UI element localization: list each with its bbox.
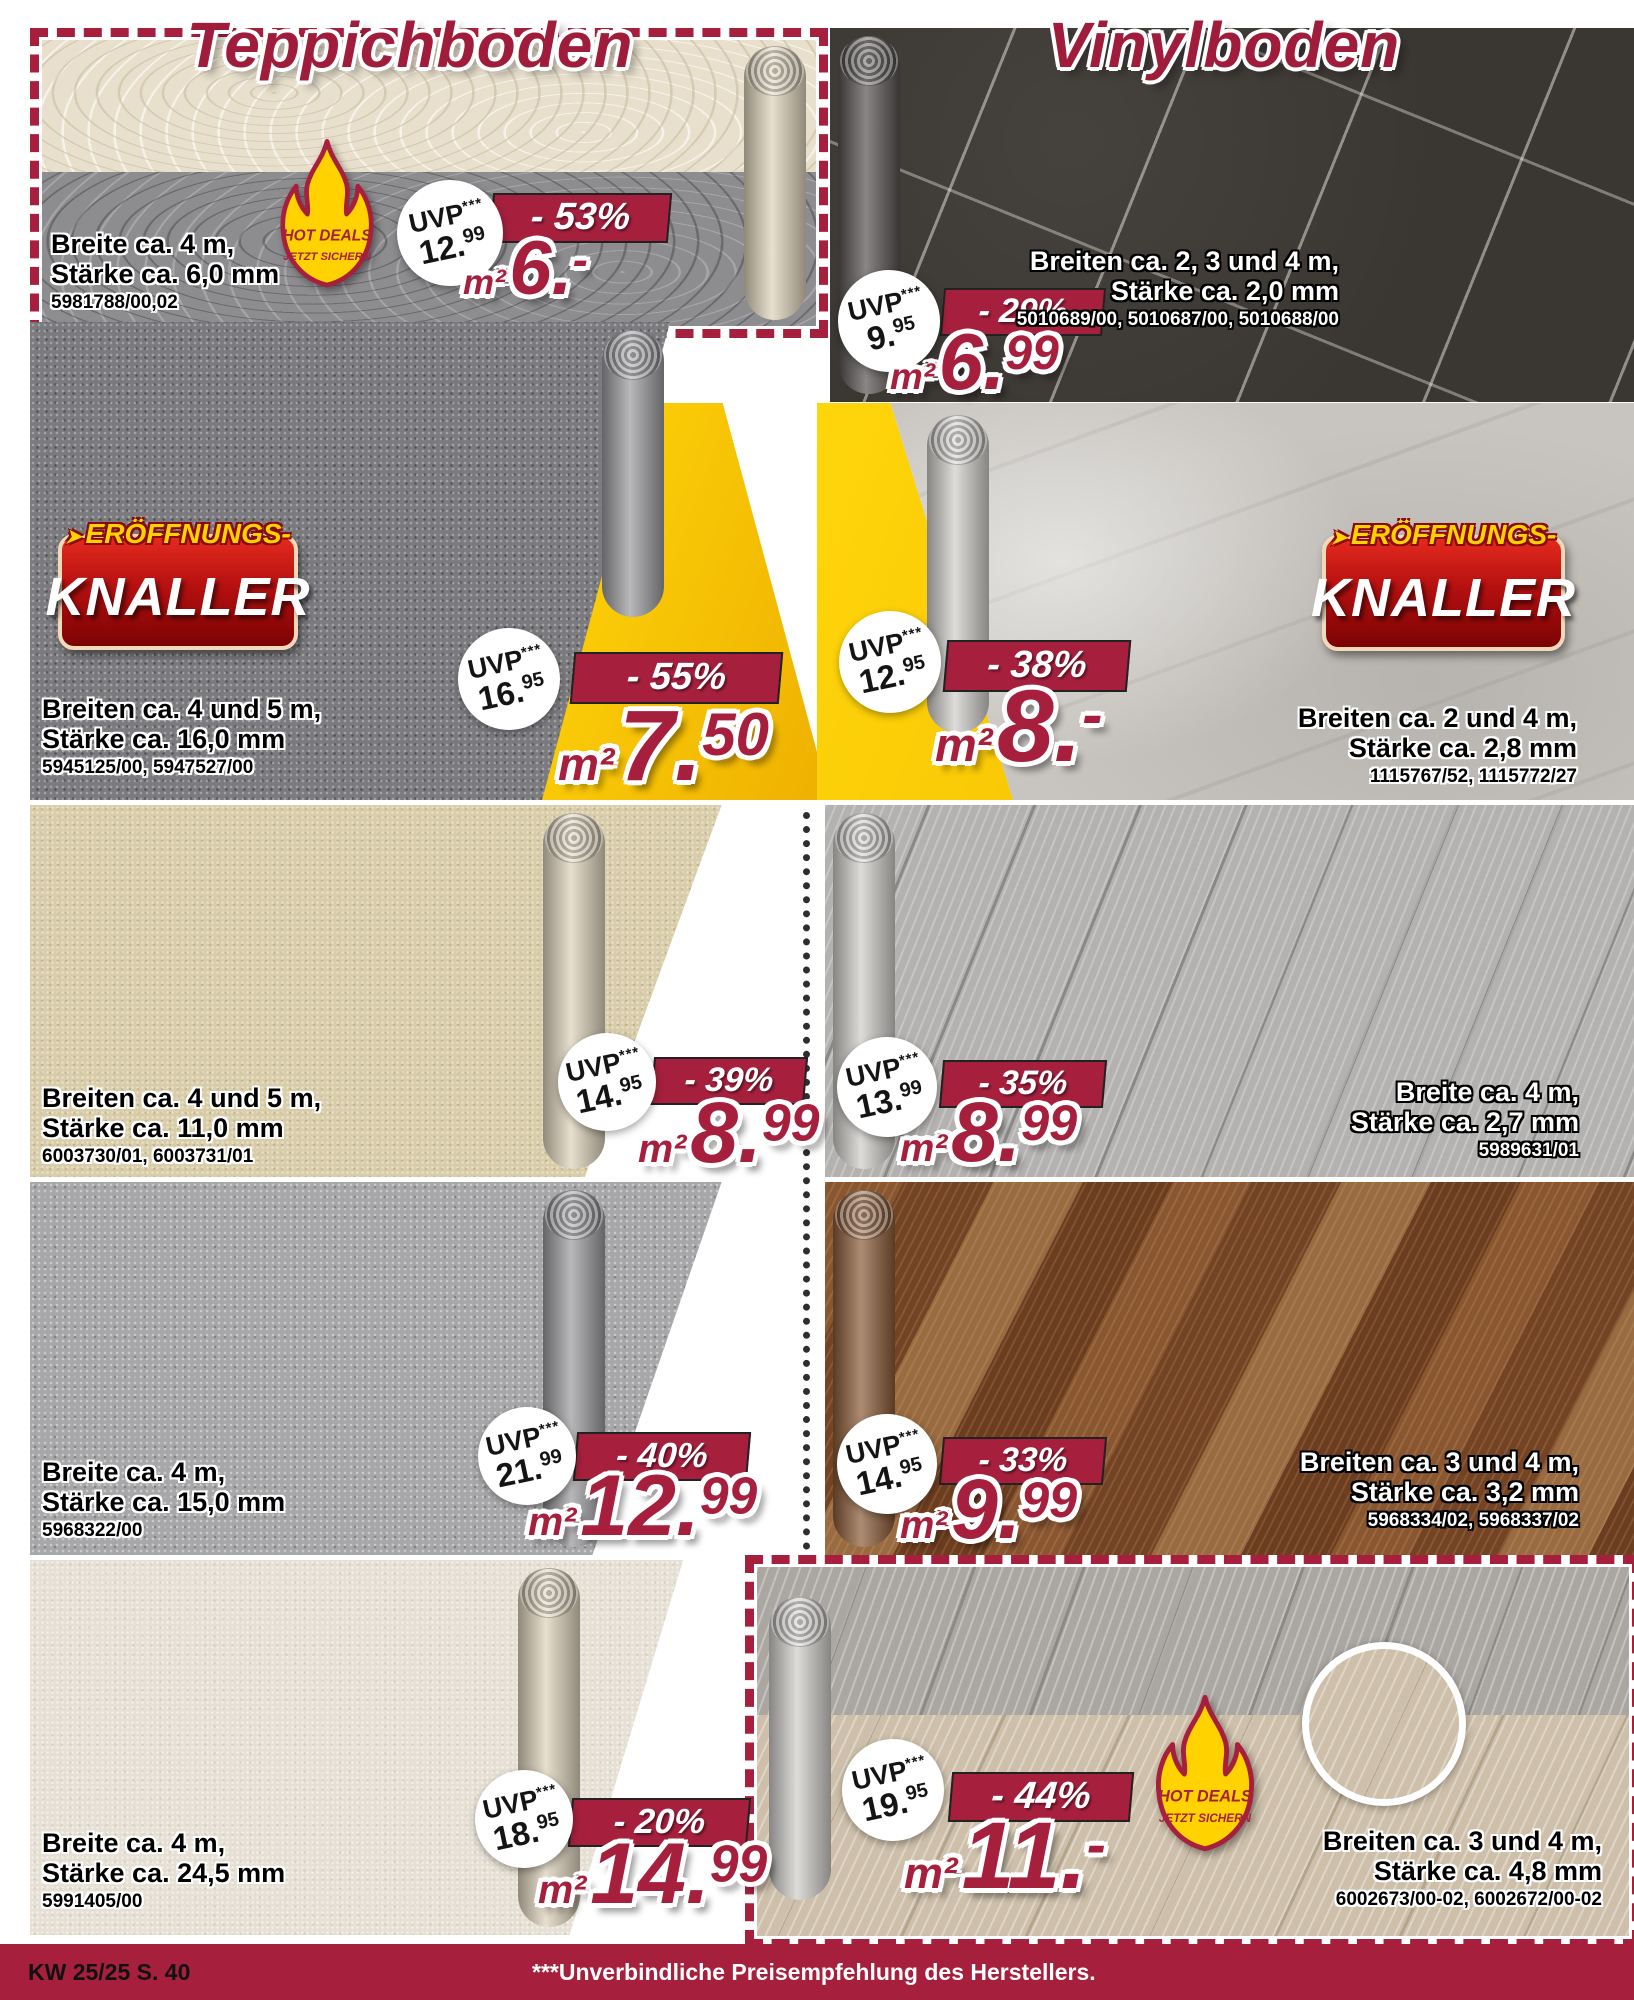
product-details: Breiten ca. 2 und 4 m, Stärke ca. 2,8 mm…: [1298, 703, 1577, 788]
product-tile-carpet-2[interactable]: ➤ERÖFFNUNGS- KNALLER UVP*** 16.95 - 55% …: [30, 322, 670, 800]
product-details: Breiten ca. 3 und 4 m, Stärke ca. 4,8 mm…: [1323, 1826, 1602, 1911]
price: m²12.99: [528, 1470, 757, 1543]
product-details: Breite ca. 4 m, Stärke ca. 24,5 mm 59914…: [42, 1828, 285, 1913]
price: m²9.99: [900, 1474, 1077, 1545]
carpet-roll-image: [602, 330, 664, 617]
price: m²6.99: [890, 328, 1059, 396]
section-title-vinylboden: Vinylboden: [834, 8, 1614, 82]
article-numbers: 5010689/00, 5010687/00, 5010688/00: [1017, 309, 1339, 330]
price: m²14.99: [538, 1838, 767, 1911]
product-details: Breiten ca. 4 und 5 m, Stärke ca. 16,0 m…: [42, 694, 321, 779]
product-details: Breiten ca. 4 und 5 m, Stärke ca. 11,0 m…: [42, 1083, 321, 1168]
price: m²8.-: [935, 683, 1102, 770]
jetzt-sichern-text: JETZT SICHERN: [1159, 1811, 1252, 1825]
article-numbers: 6002673/00-02, 6002672/00-02: [1323, 1889, 1602, 1910]
product-details: Breite ca. 4 m, Stärke ca. 15,0 mm 59683…: [42, 1457, 285, 1542]
product-tile-vinyl-1[interactable]: UVP*** 9.95 - 29% m²6.99 Breiten ca. 2, …: [830, 28, 1634, 402]
floor-sample-inset: [1302, 1642, 1466, 1806]
eroeffnungs-knaller-badge: ➤ERÖFFNUNGS- KNALLER: [58, 534, 298, 650]
article-numbers: 5945125/00, 5947527/00: [42, 757, 321, 778]
uvp-price: 12.: [416, 226, 469, 272]
product-tile-vinyl-4[interactable]: UVP*** 14.95 - 33% m²9.99 Breiten ca. 3 …: [825, 1182, 1634, 1555]
arrow-icon: ➤: [1331, 527, 1347, 549]
product-details: Breiten ca. 2, 3 und 4 m, Stärke ca. 2,0…: [1017, 246, 1339, 331]
price: m²8.99: [900, 1097, 1077, 1168]
product-tile-carpet-3[interactable]: UVP*** 14.95 - 39% m²8.99 Breiten ca. 4 …: [30, 805, 790, 1177]
flame-icon: [283, 141, 371, 285]
price: m²7.50: [558, 704, 769, 789]
product-tile-vinyl-3[interactable]: UVP*** 13.99 - 35% m²8.99 Breite ca. 4 m…: [825, 805, 1634, 1177]
product-tile-vinyl-2[interactable]: ➤ERÖFFNUNGS- KNALLER UVP*** 12.95 - 38% …: [817, 403, 1634, 800]
article-numbers: 5991405/00: [42, 1891, 285, 1912]
uvp-stars: ***: [461, 195, 485, 216]
article-numbers: 1115767/52, 1115772/27: [1298, 766, 1577, 787]
carpet-roll-image: [744, 46, 806, 320]
article-numbers: 6003730/01, 6003731/01: [42, 1146, 321, 1167]
hot-deals-flame-badge: HOT DEALS JETZT SICHERN: [271, 125, 383, 307]
price: m²6.-: [463, 237, 588, 302]
jetzt-sichern-text: JETZT SICHERN: [283, 251, 372, 263]
product-tile-carpet-4[interactable]: UVP*** 21.99 - 40% m²12.99 Breite ca. 4 …: [30, 1182, 790, 1555]
article-numbers: 5981788/00,02: [51, 292, 279, 313]
flame-icon: [1158, 1697, 1251, 1848]
product-details: Breite ca. 4 m, Stärke ca. 2,7 mm 598963…: [1351, 1077, 1579, 1162]
price: m²11.-: [904, 1816, 1106, 1897]
flyer-page: Teppichboden Vinylboden HOT DEALS JETZT …: [0, 0, 1634, 2000]
dotted-column-divider: [803, 812, 810, 1550]
hot-deals-flame-badge: HOT DEALS JETZT SICHERN: [1146, 1682, 1264, 1870]
product-tile-carpet-5[interactable]: UVP*** 18.95 - 20% m²14.99 Breite ca. 4 …: [30, 1560, 740, 1935]
section-title-teppichboden: Teppichboden: [25, 8, 795, 82]
article-numbers: 5968334/02, 5968337/02: [1300, 1510, 1579, 1531]
price: m²8.99: [638, 1097, 819, 1170]
unit-label: m²: [463, 263, 506, 302]
hot-deals-text: HOT DEALS: [283, 227, 373, 244]
price-note: ***Unverbindliche Preisempfehlung des He…: [532, 1959, 1096, 1986]
vinyl-roll-image: [769, 1597, 831, 1900]
hot-deals-text: HOT DEALS: [1158, 1788, 1252, 1806]
eroeffnungs-knaller-badge: ➤ERÖFFNUNGS- KNALLER: [1322, 535, 1565, 651]
page-ref: KW 25/25 S. 40: [28, 1959, 190, 1986]
product-tile-vinyl-5[interactable]: HOT DEALS JETZT SICHERN UVP*** 19.95 - 4…: [745, 1555, 1634, 1948]
footer-bar: KW 25/25 S. 40 ***Unverbindliche Preisem…: [0, 1944, 1634, 2000]
product-details: Breiten ca. 3 und 4 m, Stärke ca. 3,2 mm…: [1300, 1447, 1579, 1532]
article-numbers: 5989631/01: [1351, 1140, 1579, 1161]
product-details: Breite ca. 4 m, Stärke ca. 6,0 mm 598178…: [51, 229, 279, 314]
article-numbers: 5968322/00: [42, 1520, 285, 1541]
arrow-icon: ➤: [65, 526, 81, 548]
